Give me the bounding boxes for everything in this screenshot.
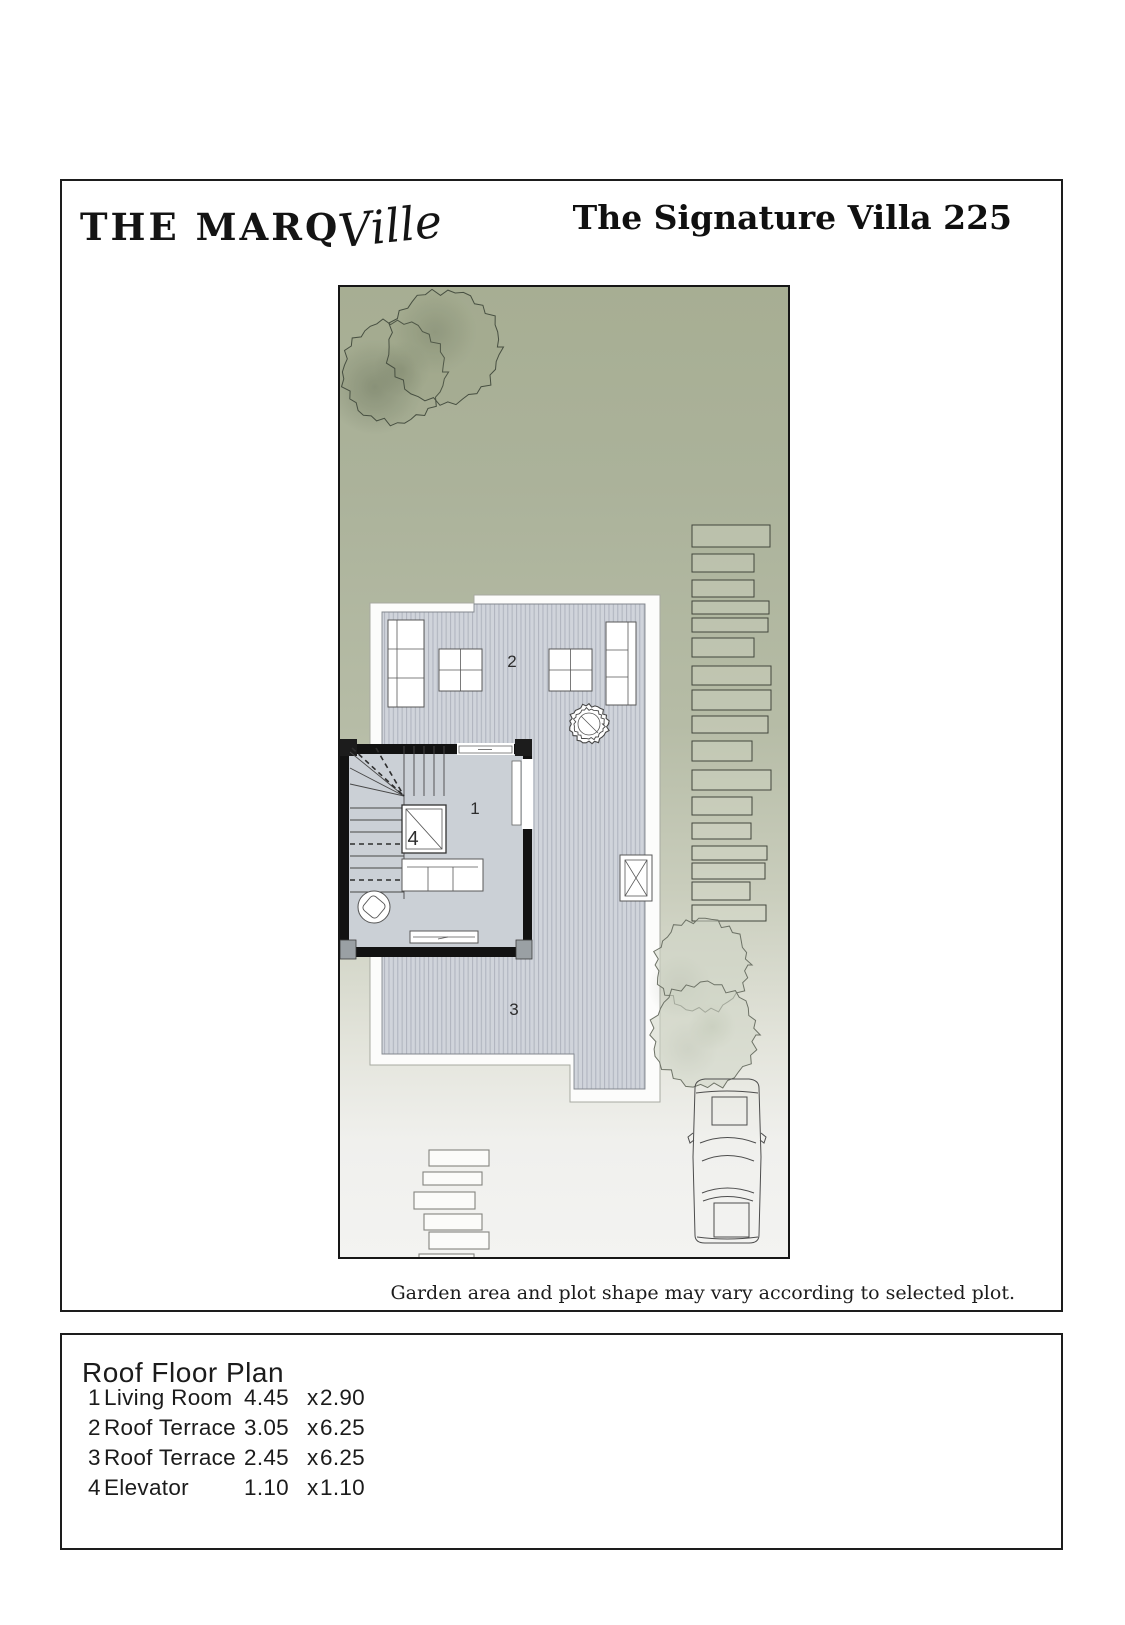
room-name: Elevator xyxy=(104,1475,244,1501)
room-dim-a: 3.05 xyxy=(244,1415,307,1441)
room-dim-a: 1.10 xyxy=(244,1475,307,1501)
room-name: Roof Terrace xyxy=(104,1415,244,1441)
room-dim-b: 2.90 xyxy=(320,1385,390,1411)
wall-top xyxy=(348,744,457,754)
legend-box: Roof Floor Plan 1 Living Room 4.45 x 2.9… xyxy=(60,1333,1063,1550)
living-room-block xyxy=(340,739,533,959)
tv-console xyxy=(410,931,478,943)
dim-separator: x xyxy=(307,1445,320,1471)
room-number: 4 xyxy=(88,1475,104,1501)
corner-pad xyxy=(340,940,356,959)
room-number: 1 xyxy=(88,1385,104,1411)
room-dim-a: 2.45 xyxy=(244,1445,307,1471)
room-name: Living Room xyxy=(104,1385,244,1411)
dim-separator: x xyxy=(307,1385,320,1411)
page-title: The Signature Villa 225 xyxy=(573,198,1012,237)
floor-plan-canvas: 1 2 3 4 xyxy=(340,287,788,1257)
dim-separator: x xyxy=(307,1475,320,1501)
stepping-stone-path-right xyxy=(692,525,771,921)
room-dim-a: 4.45 xyxy=(244,1385,307,1411)
tree-canopies-top xyxy=(340,289,504,435)
door-opening xyxy=(522,759,533,829)
logo-text: THE MARQ xyxy=(80,205,340,249)
brand-logo: THE MARQVille xyxy=(80,197,442,251)
armchair xyxy=(358,891,390,923)
sofa-living-room xyxy=(402,859,483,891)
wall-bottom xyxy=(340,947,532,957)
room-number: 2 xyxy=(88,1415,104,1441)
room-number: 3 xyxy=(88,1445,104,1471)
corner-pad xyxy=(516,940,532,959)
legend-row-roof-terrace-2: 2 Roof Terrace 3.05 x 6.25 xyxy=(88,1413,390,1443)
tree-canopies-right xyxy=(648,918,760,1088)
room-dim-b: 6.25 xyxy=(320,1445,390,1471)
legend-row-living-room: 1 Living Room 4.45 x 2.90 xyxy=(88,1383,390,1413)
stepping-stone-path-bottom xyxy=(414,1150,489,1257)
legend-row-roof-terrace-3: 3 Roof Terrace 2.45 x 6.25 xyxy=(88,1443,390,1473)
sofa-left xyxy=(388,620,424,707)
legend-row-elevator: 4 Elevator 1.10 x 1.10 xyxy=(88,1473,390,1503)
brochure-page: THE MARQVille The Signature Villa 225 xyxy=(0,0,1125,1625)
room-dim-b: 6.25 xyxy=(320,1415,390,1441)
label-living-room: 1 xyxy=(470,799,479,818)
plan-sheet: THE MARQVille The Signature Villa 225 xyxy=(60,179,1063,1312)
door-leaf xyxy=(512,761,521,825)
car-top-view xyxy=(688,1079,766,1243)
label-roof-terrace-3: 3 xyxy=(509,1000,518,1019)
sofa-right xyxy=(606,622,636,705)
wall-left xyxy=(340,744,349,957)
room-name: Roof Terrace xyxy=(104,1445,244,1471)
label-roof-terrace-2: 2 xyxy=(507,652,516,671)
roof-floor-plan-drawing: 1 2 3 4 xyxy=(338,285,790,1259)
plan-disclaimer-note: Garden area and plot shape may vary acco… xyxy=(390,1282,1015,1304)
room-dim-b: 1.10 xyxy=(320,1475,390,1501)
logo-script-text: Ville xyxy=(336,194,445,259)
skylight-hatch xyxy=(620,855,652,901)
dim-separator: x xyxy=(307,1415,320,1441)
label-elevator: 4 xyxy=(407,828,418,850)
